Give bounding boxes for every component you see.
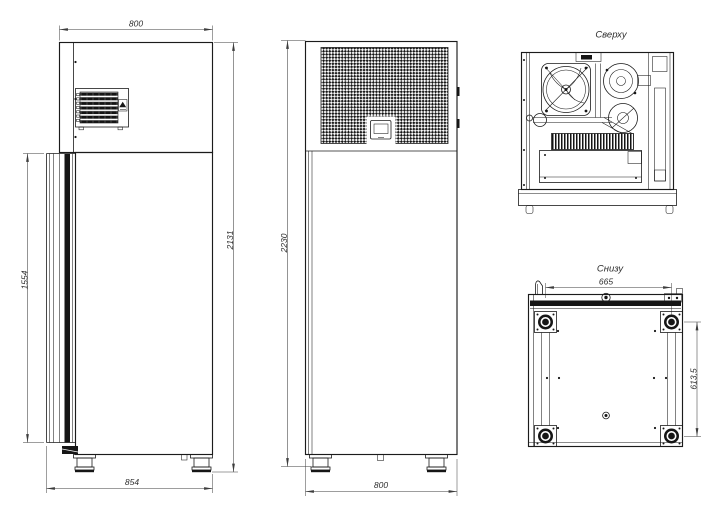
door-gasket-band: [65, 154, 71, 443]
front-edge-band: [519, 190, 677, 214]
leg-front-side-view: [74, 455, 96, 473]
dim-feet-spacing-x: 665: [546, 277, 672, 317]
hinge-upper: [457, 87, 460, 96]
foot-plate-top-right: [661, 312, 683, 333]
dim-feet-spacing-y: 613,5: [684, 322, 701, 437]
dim-side-width-top-text: 800: [129, 19, 143, 29]
door-bottom-hinge: [62, 446, 78, 454]
dim-side-height: 2131: [212, 43, 238, 473]
top-view: Сверху: [519, 30, 677, 214]
drain-hole-center: [603, 412, 610, 419]
bottom-view-title: Снизу: [597, 264, 624, 275]
hinge-lower: [457, 119, 460, 128]
drip-tray: [540, 151, 642, 183]
dim-feet-spacing-y-text: 613,5: [689, 368, 699, 390]
dim-feet-spacing-x-text: 665: [599, 277, 613, 287]
foot-plate-bottom-left: [535, 426, 557, 447]
leg-right-front-view: [426, 455, 448, 473]
drain-tab-side: [182, 455, 188, 461]
dim-side-height-text: 2131: [225, 230, 235, 250]
dim-side-depth-text: 854: [125, 477, 139, 487]
leg-left-front-view: [310, 455, 332, 473]
top-view-title: Сверху: [595, 30, 628, 41]
warning-icon: [119, 100, 128, 112]
controller-display: [367, 117, 396, 145]
drawing-svg: 800 1554 2131 854: [0, 0, 720, 514]
bottom-view-outline: [529, 295, 683, 447]
top-hinge-bracket: [576, 53, 601, 62]
bottom-view: Снизу 665: [529, 264, 702, 447]
cabinet-body-side: [76, 153, 213, 455]
drain-tab-front: [378, 455, 384, 461]
refrigerator-technical-drawing: 800 1554 2131 854: [0, 0, 720, 514]
dim-front-width-text: 800: [374, 480, 388, 490]
door-edge: [47, 154, 79, 455]
compressor: [604, 64, 651, 99]
foot-plate-top-left: [535, 312, 557, 333]
leg-rear-side-view: [191, 455, 213, 473]
side-vent-grille: [76, 89, 129, 130]
side-view: 800 1554 2131 854: [20, 19, 239, 494]
dim-door-height-text: 1554: [20, 270, 30, 289]
front-view: 2230 800: [279, 41, 460, 497]
electrical-channel: [653, 57, 668, 182]
condenser-fan: [542, 64, 591, 116]
condenser-coil: [552, 134, 634, 150]
dim-front-height-text: 2230: [279, 233, 289, 253]
top-view-outline: [522, 53, 674, 190]
foot-plate-bottom-right: [661, 426, 683, 447]
dim-side-width-top: 800: [60, 19, 213, 41]
door-hinge-bracket-bottom: [536, 281, 543, 295]
dim-door-height: 1554: [20, 154, 45, 443]
dim-front-height: 2230: [279, 41, 311, 467]
